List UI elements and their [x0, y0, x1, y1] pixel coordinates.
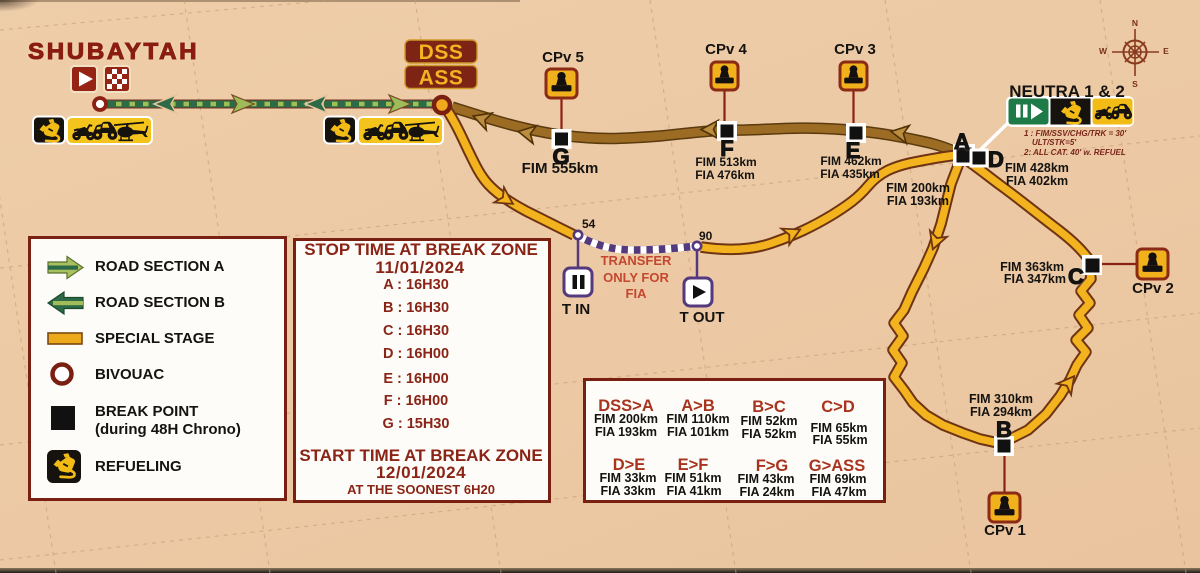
- svg-text:DSS: DSS: [419, 41, 464, 64]
- svg-text:ASS: ASS: [419, 67, 464, 90]
